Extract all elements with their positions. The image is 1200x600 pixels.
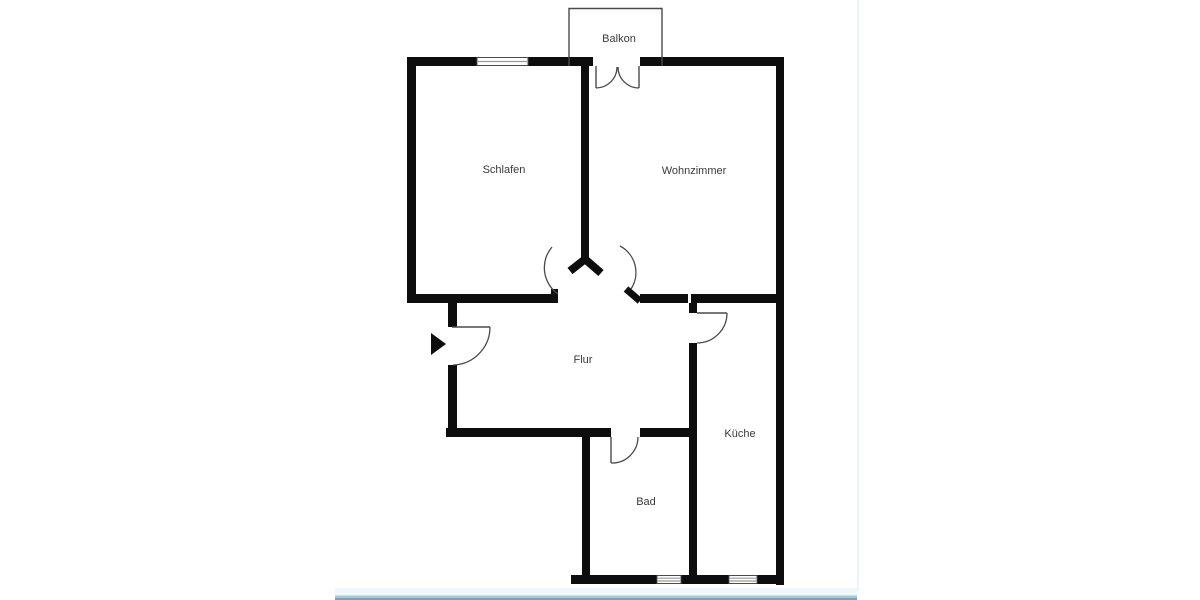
balkon-door bbox=[596, 66, 639, 88]
bad-top-wall-right bbox=[640, 428, 689, 437]
divider-end-stub-right bbox=[586, 260, 601, 273]
schlafen-wohnzimmer-divider-wall bbox=[581, 66, 589, 262]
bad-left-wall bbox=[582, 437, 590, 575]
flur-left-wall-upper bbox=[448, 303, 457, 327]
wohnzimmer-wall-end-stub bbox=[626, 289, 640, 301]
kueche-window bbox=[729, 576, 757, 584]
top-wall-middle-segment bbox=[528, 57, 593, 66]
flur-left-wall-lower bbox=[448, 365, 457, 437]
kueche-wall-main bbox=[689, 343, 697, 575]
bad-label: Bad bbox=[636, 496, 656, 508]
bottom-wall-middle-segment bbox=[681, 575, 729, 584]
bottom-blue-strip bbox=[335, 588, 857, 600]
wohnzimmer-label: Wohnzimmer bbox=[662, 165, 727, 177]
windows bbox=[477, 58, 757, 584]
floor-plan-canvas: Balkon Schlafen Wohnzimmer Flur Bad Küch… bbox=[0, 0, 1200, 600]
flur-label: Flur bbox=[574, 354, 593, 366]
right-outer-wall bbox=[776, 57, 784, 585]
strip-light-band bbox=[335, 588, 857, 596]
schlafen-label: Schlafen bbox=[483, 164, 526, 176]
balkon-label: Balkon bbox=[602, 33, 636, 45]
bad-window bbox=[657, 576, 681, 584]
bottom-wall-right-segment bbox=[757, 575, 784, 584]
flur-bottom-wall bbox=[446, 428, 611, 437]
wohnzimmer-door-arc bbox=[620, 246, 636, 289]
kueche-wall-upper-stub bbox=[689, 303, 697, 313]
outer-walls bbox=[407, 57, 784, 585]
schlafen-window bbox=[477, 58, 528, 66]
schlafen-bottom-wall bbox=[407, 294, 552, 303]
wohnzimmer-bottom-wall-right bbox=[691, 294, 776, 303]
page-edge-line bbox=[857, 0, 859, 591]
kueche-label: Küche bbox=[724, 428, 755, 440]
interior-walls bbox=[407, 66, 776, 575]
entrance-door bbox=[452, 327, 490, 365]
left-outer-wall bbox=[407, 57, 416, 303]
bottom-wall-left-segment bbox=[571, 575, 657, 584]
entrance-arrow-icon bbox=[431, 333, 446, 355]
divider-end-stub-left bbox=[570, 260, 584, 271]
wohnzimmer-bottom-wall-left bbox=[640, 294, 688, 303]
top-wall-left-segment bbox=[407, 57, 477, 66]
kueche-door bbox=[697, 313, 727, 343]
bad-door bbox=[611, 437, 638, 463]
schlafen-door-arc bbox=[544, 247, 558, 294]
floor-plan-drawing: Balkon Schlafen Wohnzimmer Flur Bad Küch… bbox=[0, 0, 1200, 600]
